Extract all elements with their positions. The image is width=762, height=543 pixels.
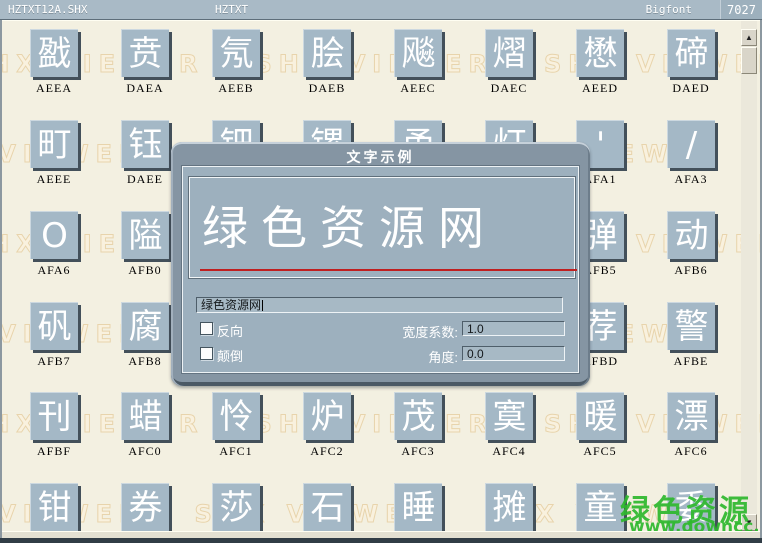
client-top-highlight (2, 20, 760, 21)
char-tile[interactable]: 脍 (303, 29, 351, 77)
char-tile[interactable]: 蜡 (121, 392, 169, 440)
char-tile[interactable]: 警 (667, 302, 715, 350)
text-sample-dialog: 文字示例 绿色资源网 绿色资源网 反向 颠倒 宽度系数: 1.0 角度: 0.0 (171, 142, 590, 386)
font-file-name: HZTXT12A.SHX (8, 3, 87, 16)
char-tile[interactable]: 钰 (121, 120, 169, 168)
glyph-preview-text: 绿色资源网 (202, 192, 497, 258)
char-code-label: DAEC (479, 81, 539, 96)
char-code-label: AFC2 (297, 444, 357, 459)
glyph-preview-box: 绿色资源网 (189, 177, 575, 278)
char-tile[interactable]: 钳 (30, 483, 78, 531)
char-code-label: AEEE (24, 172, 84, 187)
char-tile[interactable]: 暖 (576, 392, 624, 440)
char-code-label: AFA6 (24, 263, 84, 278)
char-code-label: AFB0 (115, 263, 175, 278)
flip-checkbox[interactable] (200, 347, 213, 360)
char-tile[interactable]: 摊 (485, 483, 533, 531)
char-tile[interactable]: 动 (667, 211, 715, 259)
char-code-label: AEEB (206, 81, 266, 96)
sample-text-input[interactable]: 绿色资源网 (196, 297, 563, 313)
char-tile[interactable]: 券 (121, 483, 169, 531)
dialog-title: 文字示例 (171, 147, 590, 167)
shx-viewer-watermark: SHX VIEWER SHX VIEWER SHX VIEWER SHX VIE… (0, 410, 762, 438)
char-code-label: DAEB (297, 81, 357, 96)
shx-viewer-watermark: SHX VIEWER SHX VIEWER SHX VIEWER SHX VIE… (0, 50, 762, 78)
char-tile[interactable]: 戤 (30, 29, 78, 77)
char-tile[interactable]: 腐 (121, 302, 169, 350)
char-tile[interactable]: 睡 (394, 483, 442, 531)
char-code-label: AFC1 (206, 444, 266, 459)
char-tile[interactable]: 童 (576, 483, 624, 531)
char-tile[interactable]: 熠 (485, 29, 533, 77)
text-caret (262, 300, 263, 311)
char-tile[interactable]: 矾 (30, 302, 78, 350)
char-code-label: AFB7 (24, 354, 84, 369)
vertical-scrollbar[interactable]: ▲ ▼ (741, 21, 757, 531)
char-tile[interactable]: 茂 (394, 392, 442, 440)
char-code-label: DAED (661, 81, 721, 96)
width-factor-input[interactable]: 1.0 (462, 321, 565, 336)
char-tile[interactable]: 氖 (212, 29, 260, 77)
dialog-panel: 绿色资源网 绿色资源网 反向 颠倒 宽度系数: 1.0 角度: 0.0 (181, 165, 580, 374)
char-code-label: AFB8 (115, 354, 175, 369)
char-tile[interactable]: 怜 (212, 392, 260, 440)
char-tile[interactable]: 隘 (121, 211, 169, 259)
char-code-label: AFB6 (661, 263, 721, 278)
char-code-label: AEEA (24, 81, 84, 96)
sample-text-value: 绿色资源网 (201, 298, 261, 312)
angle-label: 角度: (398, 347, 458, 366)
char-tile[interactable]: O (30, 211, 78, 259)
char-code-label: AFC5 (570, 444, 630, 459)
baseline-underline (200, 269, 577, 271)
title-bar: HZTXT12A.SHX HZTXT Bigfont 7027 (0, 0, 762, 20)
char-code-label: DAEE (115, 172, 175, 187)
char-code-label: AFBF (24, 444, 84, 459)
char-code-label: AEED (570, 81, 630, 96)
window-left-border (0, 19, 2, 538)
scroll-up-icon[interactable]: ▲ (741, 29, 757, 46)
char-tile[interactable]: 碲 (667, 29, 715, 77)
char-tile[interactable]: 炉 (303, 392, 351, 440)
reverse-checkbox-label: 反向 (217, 321, 243, 340)
char-tile[interactable]: 漂 (667, 392, 715, 440)
char-tile[interactable]: 贲 (121, 29, 169, 77)
char-tile[interactable]: 石 (303, 483, 351, 531)
reverse-checkbox[interactable] (200, 322, 213, 335)
char-code-label: DAEA (115, 81, 175, 96)
char-tile[interactable]: 寞 (485, 392, 533, 440)
char-tile[interactable]: 刊 (30, 392, 78, 440)
width-factor-label: 宽度系数: (398, 322, 458, 341)
char-tile[interactable]: / (667, 120, 715, 168)
char-code-label: AFA3 (661, 172, 721, 187)
window-bottom-border (0, 538, 762, 543)
char-code-label: AFBE (661, 354, 721, 369)
char-code-label: AFC6 (661, 444, 721, 459)
char-code-label: AEEC (388, 81, 448, 96)
char-code-label: AFC4 (479, 444, 539, 459)
glyph-count-badge: 7027 (720, 0, 762, 19)
char-tile[interactable]: 飚 (394, 29, 442, 77)
char-tile[interactable]: 莎 (212, 483, 260, 531)
flip-checkbox-label: 颠倒 (217, 346, 243, 365)
scroll-thumb[interactable] (741, 47, 757, 74)
font-name: HZTXT (215, 3, 248, 16)
char-code-label: AFC0 (115, 444, 175, 459)
angle-input[interactable]: 0.0 (462, 346, 565, 361)
app-window: HZTXT12A.SHX HZTXT Bigfont 7027 SHX VIEW… (0, 0, 762, 543)
char-code-label: AFC3 (388, 444, 448, 459)
font-type-label: Bigfont (646, 3, 692, 16)
char-tile[interactable]: 懋 (576, 29, 624, 77)
char-tile[interactable]: 町 (30, 120, 78, 168)
